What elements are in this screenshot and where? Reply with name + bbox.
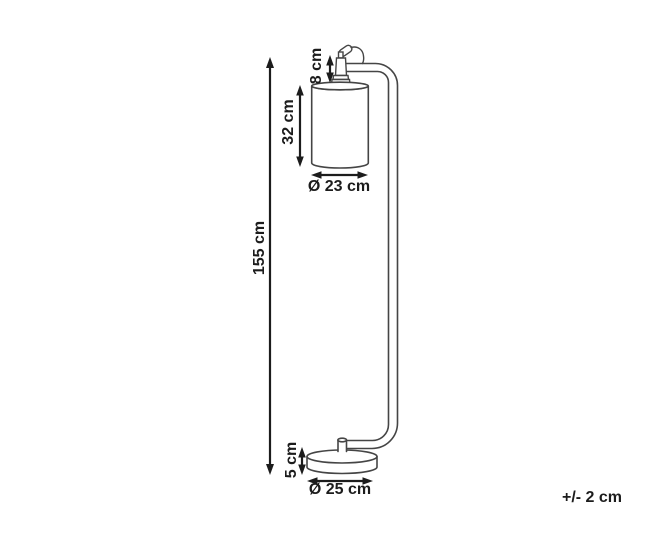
label-shade-height: 32 cm <box>281 99 297 144</box>
lamp-base <box>307 450 377 474</box>
label-shade-diameter: Ø 23 cm <box>308 179 370 195</box>
label-total-height: 155 cm <box>252 221 268 275</box>
label-tolerance: +/- 2 cm <box>562 489 622 507</box>
floor-lamp-drawing <box>307 44 398 474</box>
diagram-stage: 155 cm 8 cm 32 cm Ø 23 cm 5 cm Ø 25 cm +… <box>0 0 650 551</box>
label-base-height: 5 cm <box>284 442 300 478</box>
dim-arrow-shade-height <box>296 85 304 167</box>
label-socket-height: 8 cm <box>309 48 325 84</box>
label-base-diameter: Ø 25 cm <box>309 482 371 498</box>
diagram-canvas <box>0 0 650 551</box>
lamp-shade <box>312 82 369 168</box>
base-post <box>338 438 347 451</box>
